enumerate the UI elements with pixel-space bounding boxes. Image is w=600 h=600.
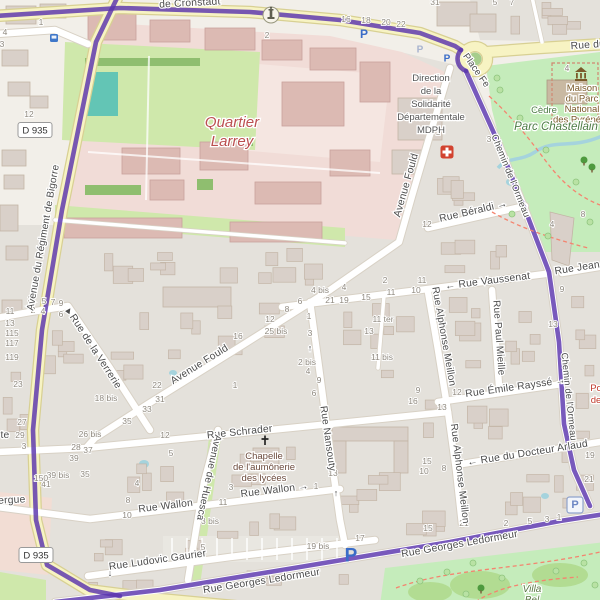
house-number: 4 bis xyxy=(311,285,329,295)
building xyxy=(255,182,321,204)
area-label: Villa xyxy=(523,584,542,595)
building xyxy=(262,40,302,60)
building xyxy=(259,303,279,314)
building xyxy=(2,50,28,66)
area-label: National xyxy=(565,104,600,115)
house-number: 31 xyxy=(155,394,165,404)
building xyxy=(163,287,231,307)
building xyxy=(522,351,534,361)
house-number: 12 xyxy=(24,109,34,119)
house-number: 16 xyxy=(341,14,351,24)
monument-icon[interactable] xyxy=(263,7,279,23)
building xyxy=(6,246,28,260)
house-number: 4 xyxy=(306,366,311,376)
area-label: Solidarité xyxy=(411,99,451,110)
building xyxy=(310,48,356,70)
building xyxy=(344,312,352,328)
house-number: 8 xyxy=(442,463,447,473)
building xyxy=(496,245,507,257)
area-label: Direction xyxy=(412,73,450,84)
tree-icon xyxy=(417,578,423,584)
house-number: 13 xyxy=(437,402,447,412)
tree-icon xyxy=(592,582,598,588)
house-number: 5 xyxy=(528,516,533,526)
house-number: 2 xyxy=(383,275,388,285)
hedge-row xyxy=(197,179,213,190)
building xyxy=(282,82,344,126)
building xyxy=(394,441,408,473)
house-number: 5 xyxy=(169,448,174,458)
parking-icon[interactable]: P xyxy=(360,27,368,41)
house-number: 8 xyxy=(581,209,586,219)
building xyxy=(489,427,503,439)
area-label: de l'aumônerie xyxy=(233,462,295,473)
area-label: MDPH xyxy=(417,125,445,136)
house-number: 6 xyxy=(298,296,303,306)
house-number: 3 xyxy=(545,514,550,524)
medical-cross-icon[interactable] xyxy=(441,146,454,159)
building xyxy=(150,20,190,42)
tree-icon xyxy=(587,219,593,225)
house-number: 2 xyxy=(265,30,270,40)
house-number: 10 xyxy=(411,285,421,295)
house-number: 26 bis xyxy=(79,429,102,439)
building xyxy=(470,14,496,32)
tree-icon xyxy=(545,233,551,239)
house-number: 9 xyxy=(416,385,421,395)
house-number: 11 ter xyxy=(372,314,393,324)
house-number: 39 xyxy=(69,453,79,463)
building xyxy=(467,406,487,423)
house-number: 11 xyxy=(6,306,15,316)
house-number: 35 xyxy=(122,416,132,426)
building xyxy=(455,240,475,254)
house-number: 4 xyxy=(135,478,140,488)
building xyxy=(384,326,394,334)
area-label: Cèdre xyxy=(531,105,557,116)
svg-text:P: P xyxy=(571,499,578,511)
house-number: 2 xyxy=(504,518,509,528)
area-label: Maison xyxy=(567,83,598,94)
house-number: 15 xyxy=(423,523,433,533)
street-label: ergue xyxy=(0,494,26,506)
parking-icon[interactable]: P xyxy=(345,546,358,567)
area-label: Po xyxy=(590,383,600,394)
house-number: 12 xyxy=(422,219,432,229)
house-number: 16 xyxy=(408,396,418,406)
building xyxy=(266,253,278,266)
building xyxy=(259,273,272,284)
building xyxy=(181,313,193,329)
house-number: 4 xyxy=(3,27,8,37)
tree-icon xyxy=(463,591,469,597)
building xyxy=(217,531,238,538)
building xyxy=(523,497,540,512)
building xyxy=(140,313,149,330)
parking-icon[interactable]: P xyxy=(444,54,451,65)
area-label: Quartier xyxy=(205,114,260,131)
house-number: 25 bis xyxy=(265,326,288,336)
house-number: 10 xyxy=(122,510,132,520)
svg-text:P: P xyxy=(360,27,368,41)
house-number: 9 xyxy=(59,298,64,308)
house-number: 10 xyxy=(419,466,429,476)
building xyxy=(368,476,388,485)
building xyxy=(542,8,562,15)
svg-text:P: P xyxy=(417,45,424,56)
building xyxy=(381,370,393,377)
house-number: 4 xyxy=(565,63,570,73)
house-number: 115 xyxy=(5,328,19,338)
house-number: 15 xyxy=(361,292,371,302)
house-number: 3 xyxy=(229,482,234,492)
building xyxy=(0,205,18,231)
street-label: te xyxy=(1,430,10,441)
house-number: 13 xyxy=(5,318,15,328)
area-label: des lycées xyxy=(242,473,287,484)
house-number: 31 xyxy=(430,0,440,7)
building xyxy=(218,306,232,318)
building xyxy=(519,311,531,322)
building xyxy=(64,354,84,363)
house-number: 7 xyxy=(510,0,515,7)
oneway-arrow-icon: ↓ xyxy=(108,568,113,578)
house-number: 21 xyxy=(584,474,594,484)
house-number: 7 xyxy=(51,297,56,307)
house-number: 12 xyxy=(160,430,170,440)
house-number: 1 xyxy=(557,512,562,522)
house-number: 6 xyxy=(312,388,317,398)
house-number: 16 xyxy=(233,331,243,341)
building xyxy=(122,148,180,174)
building xyxy=(157,253,172,261)
house-number: 22 xyxy=(152,380,162,390)
house-number: 23 xyxy=(13,379,23,389)
house-number: 33 xyxy=(142,404,152,414)
house-number: 11 xyxy=(219,497,228,507)
house-number: 4 xyxy=(550,219,555,229)
building xyxy=(143,473,152,490)
building xyxy=(8,82,30,96)
building xyxy=(286,447,295,460)
building xyxy=(451,180,463,198)
house-number: 3 xyxy=(22,441,27,451)
oneway-arrow-icon: ↑ xyxy=(308,343,313,353)
house-number: 3 xyxy=(0,39,5,49)
building xyxy=(111,352,133,359)
pond xyxy=(541,493,549,499)
building xyxy=(30,96,48,108)
tree-icon xyxy=(581,560,587,566)
building xyxy=(161,466,174,481)
house-number: 19 xyxy=(585,450,595,460)
tree-icon xyxy=(509,211,515,217)
svg-text:D 935: D 935 xyxy=(22,126,47,137)
area-label: de xyxy=(591,395,600,406)
tree-icon xyxy=(470,560,476,566)
house-number: 8 xyxy=(285,304,290,314)
building xyxy=(150,180,184,200)
house-number: 150 xyxy=(34,473,48,483)
route-ref-badge: D 935 xyxy=(18,123,52,138)
building xyxy=(449,297,467,312)
tree-icon xyxy=(494,75,500,81)
hedge-row xyxy=(85,185,141,195)
tree-icon xyxy=(573,179,579,185)
building xyxy=(52,331,62,345)
house-number: 21 xyxy=(325,295,335,305)
building xyxy=(506,341,517,352)
area-label: Larrey xyxy=(211,133,255,150)
house-number: 4 xyxy=(342,282,347,292)
house-number: 20 xyxy=(381,17,391,27)
building xyxy=(4,175,24,189)
house-number: 28 xyxy=(71,442,81,452)
house-number: 117 xyxy=(5,338,19,348)
building xyxy=(128,269,143,282)
building xyxy=(205,28,255,50)
building xyxy=(553,24,567,34)
building xyxy=(339,496,359,505)
house-number: 13 xyxy=(364,326,374,336)
route-ref-badge: D 935 xyxy=(19,548,53,563)
building xyxy=(511,493,523,506)
building xyxy=(572,296,584,307)
building xyxy=(360,62,390,102)
building xyxy=(576,330,585,340)
building xyxy=(423,423,433,438)
house-number: 9 xyxy=(560,284,565,294)
parking-muted-icon[interactable]: P xyxy=(417,45,424,56)
building xyxy=(94,553,103,561)
house-number: 19 xyxy=(339,295,349,305)
house-number: 5 xyxy=(42,296,47,306)
building xyxy=(530,334,540,344)
area-label: Chapelle xyxy=(245,451,283,462)
svg-text:P: P xyxy=(345,546,358,567)
area-label: Bel xyxy=(525,595,540,600)
house-number: 8 xyxy=(126,495,131,505)
building xyxy=(3,397,12,414)
map-canvas[interactable]: PPPPP 1431221618202231574131248211357924… xyxy=(0,0,600,600)
house-number: 1 xyxy=(307,311,312,321)
house-number: 17 xyxy=(355,533,365,543)
tree-icon xyxy=(543,147,549,153)
house-number: 119 xyxy=(5,352,19,362)
building xyxy=(220,268,237,283)
house-number: 11 xyxy=(418,275,427,285)
building xyxy=(397,317,415,332)
street-label: Rue du xyxy=(570,39,600,52)
building xyxy=(168,350,180,359)
building xyxy=(343,330,360,345)
house-number: 11 bis xyxy=(371,352,393,362)
house-number: 12 xyxy=(265,314,275,324)
house-number: 12 xyxy=(452,387,462,397)
building xyxy=(100,540,112,547)
house-number: 29 xyxy=(15,430,25,440)
building xyxy=(304,264,322,279)
building xyxy=(566,21,581,29)
house-number: 1 xyxy=(39,17,44,27)
building xyxy=(585,365,594,376)
building xyxy=(2,150,26,166)
house-number: 11 xyxy=(387,287,396,297)
tree-icon xyxy=(444,569,450,575)
house-number: 22 xyxy=(396,19,406,29)
building xyxy=(445,266,465,273)
building xyxy=(339,575,348,585)
tree-icon xyxy=(553,568,559,574)
building xyxy=(466,361,481,368)
building xyxy=(576,393,588,408)
svg-text:D 935: D 935 xyxy=(23,551,48,562)
building xyxy=(104,254,112,271)
house-number: 37 xyxy=(83,445,93,455)
area-label: du Parc xyxy=(566,94,599,105)
svg-text:P: P xyxy=(444,54,451,65)
tree-icon xyxy=(499,575,505,581)
building xyxy=(527,475,549,482)
oneway-arrow-icon: ↑ xyxy=(334,488,339,498)
bus-stop-icon[interactable] xyxy=(50,34,58,42)
house-number: 35 xyxy=(80,469,90,479)
hedge-row xyxy=(85,58,200,66)
building xyxy=(471,309,480,318)
area-label: Parc Chastellain xyxy=(514,121,598,133)
house-number: 5 xyxy=(493,0,498,7)
house-number: 13 xyxy=(548,319,558,329)
parking-boxed-icon[interactable]: P xyxy=(567,497,583,513)
house-number: 4 xyxy=(41,306,46,316)
building xyxy=(250,522,259,536)
building xyxy=(287,248,303,261)
house-number: 1 xyxy=(233,380,238,390)
area-label: Départementale xyxy=(397,112,465,123)
tree-icon xyxy=(497,87,503,93)
building xyxy=(332,427,408,441)
house-number: 9 xyxy=(317,375,322,385)
building xyxy=(357,489,377,500)
building xyxy=(555,476,564,492)
building xyxy=(270,514,280,529)
building xyxy=(511,16,520,34)
house-number: 3 xyxy=(308,328,313,338)
building xyxy=(548,16,568,24)
house-number: 15 xyxy=(422,456,432,466)
building xyxy=(273,268,296,283)
house-number: 18 bis xyxy=(95,393,118,403)
house-number: 18 xyxy=(361,15,371,25)
building xyxy=(151,263,166,270)
building xyxy=(137,464,147,474)
house-number: 1 xyxy=(314,481,319,491)
building xyxy=(455,321,475,335)
building xyxy=(489,409,508,426)
area-label: de la xyxy=(421,86,442,97)
house-number: 27 xyxy=(17,417,27,427)
house-number: 19 bis xyxy=(307,541,330,551)
building xyxy=(124,365,143,379)
